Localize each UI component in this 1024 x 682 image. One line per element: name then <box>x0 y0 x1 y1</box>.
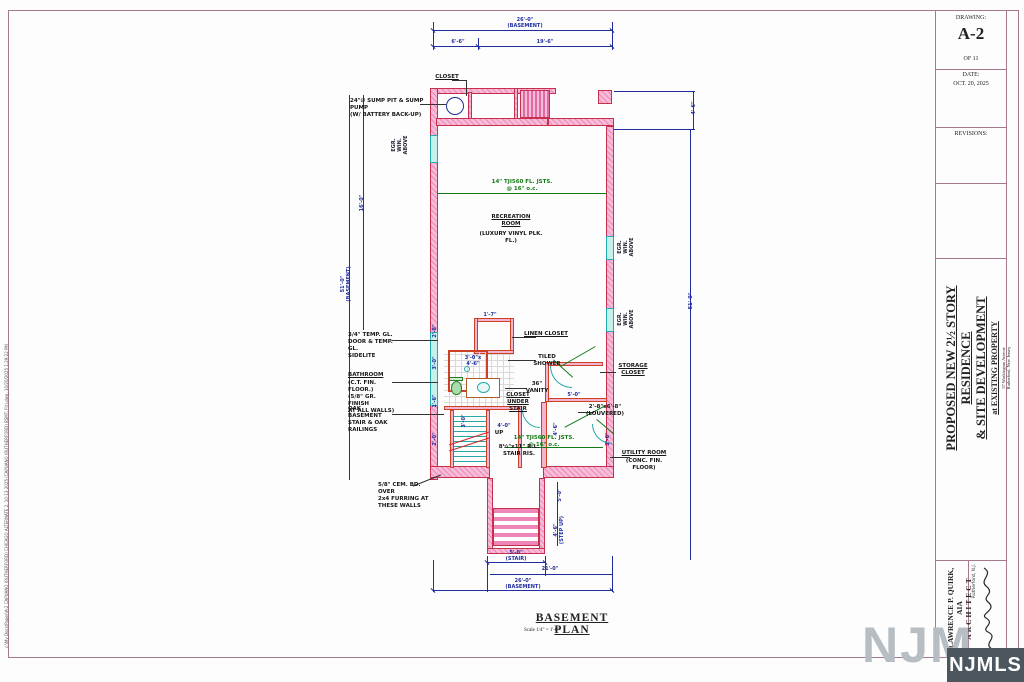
leader-line <box>392 382 438 383</box>
dim-ext <box>433 560 434 592</box>
dim-left-total: 51'-0" (BASEMENT) <box>340 260 352 308</box>
njmls-badge: NJMLS <box>947 648 1024 682</box>
wall-top-right <box>548 118 614 126</box>
label-joists-upper: 14" TJI560 FL. JSTS. @ 16" o.c. <box>490 179 554 193</box>
revisions-label: REVISIONS: <box>938 131 1004 137</box>
label-sump-pump: 24"∅ SUMP PIT & SUMP PUMP (W/ BATTERY BA… <box>350 98 424 119</box>
dim-bottom-total: 26'-0" (BASEMENT) <box>493 578 553 590</box>
exterior-steps <box>493 508 539 546</box>
dim-line <box>433 46 613 47</box>
partition <box>474 318 478 354</box>
partition <box>474 318 514 322</box>
plan-scale: Scale 1/4" = 1'-0" <box>524 628 584 633</box>
sump-pit-circle <box>446 97 464 115</box>
label-recreation-floor: (LUXURY VINYL PLK. FL.) <box>478 231 544 245</box>
label-tiled-shower: TILED SHOWER <box>532 354 562 368</box>
dim-storage: 5'-0" <box>562 392 586 398</box>
label-stair-risers: 8½"x11" R.L. STAIR RIS. <box>496 444 542 458</box>
window-right-lower <box>606 308 614 332</box>
architect-signature <box>976 564 1007 654</box>
joist-span-line <box>437 193 607 194</box>
dim-left-small: 2'-8" <box>432 320 438 342</box>
dim-right-upper: 4'-6" <box>691 96 697 120</box>
label-closet: CLOSET <box>430 74 464 81</box>
dim-top-left: 6'-6" <box>438 39 478 45</box>
drawing-label: DRAWING: <box>938 15 1004 21</box>
project-title-line3: at EXISTING PROPERTY <box>990 268 999 468</box>
stairwell-wall <box>539 478 545 550</box>
egress-window-note: EGR. WIN. ABOVE <box>617 305 635 333</box>
dim-door: 2'-6" <box>605 427 611 451</box>
label-utility-room: UTILITY ROOM <box>616 450 672 457</box>
window-right-upper <box>606 236 614 260</box>
label-utility-floor: (CONC. FIN. FLOOR) <box>616 458 672 472</box>
note-oak-stair: OAK BASEMENT STAIR & OAK RAILINGS <box>348 406 394 434</box>
signature-icon <box>976 564 1002 654</box>
project-title-line1: PROPOSED NEW 2½ STORY RESIDENCE <box>944 268 974 468</box>
drawing-sheet: c:\My Docs\Paper\A-2 CAPUANO (RUTHERFORD… <box>0 0 1024 682</box>
dim-understair: 4'-0" <box>492 423 516 429</box>
dim-line-right <box>690 130 691 560</box>
dim-bottom-inner: 21'-0" <box>520 566 580 572</box>
wall-segment <box>436 118 548 126</box>
toilet-tank <box>449 377 463 381</box>
label-bathroom: BATHROOM <box>348 372 394 379</box>
dim-ext <box>612 556 613 592</box>
dim-line <box>487 562 545 563</box>
titleblock-divider <box>935 560 1006 561</box>
plot-stamp: c:\My Docs\Paper\A-2 CAPUANO (RUTHERFORD… <box>4 328 9 648</box>
dim-bottom-stair: 5'-0" (STAIR) <box>487 550 545 562</box>
dim-stairwell-steps: 4'-6" (STEP UP) <box>553 515 565 545</box>
label-recreation-room: RECREATION ROOM <box>488 214 534 228</box>
storage-wall <box>545 398 607 402</box>
dim-left-small: 3'-0" <box>432 352 438 374</box>
note-tempered-glass: 3/4" TEMP. GL. DOOR & TEMP. GL. SIDELITE <box>348 332 394 360</box>
dim-top-total: 26'-0" (BASEMENT) <box>495 17 555 29</box>
label-storage-closet: STORAGE CLOSET <box>614 363 652 377</box>
window-left-upper <box>430 135 438 163</box>
dim-top-right: 19'-6" <box>520 39 570 45</box>
dim-line <box>614 91 695 92</box>
column <box>598 90 612 104</box>
label-louvered-door: 2'-8"x6'-8" (LOUVERED) <box>582 404 628 418</box>
dim-stairwell-depth: 5'-0" <box>557 483 563 507</box>
project-title-block: PROPOSED NEW 2½ STORY RESIDENCE & SITE D… <box>944 268 1011 468</box>
date-label: DATE: <box>938 72 1004 78</box>
titleblock-divider <box>935 69 1006 70</box>
dim-left-small: 1'-6" <box>432 390 438 412</box>
dim-left-small: 2'-0" <box>432 428 438 450</box>
toilet-fixture <box>451 381 462 395</box>
leader-line <box>392 414 444 415</box>
dim-stair-width: 3'-0" <box>461 409 467 433</box>
leader-line <box>466 80 467 96</box>
titleblock-divider <box>935 127 1006 128</box>
label-closet-under-stair: CLOSET UNDER STAIR <box>500 392 536 413</box>
dim-line <box>490 574 612 575</box>
titleblock-divider <box>935 183 1006 184</box>
project-address-line2: Rutherford, New Jersey <box>1006 268 1011 468</box>
note-cement-board: 5/8" CEM. BD. OVER 2x4 FURRING AT THESE … <box>378 482 434 510</box>
egress-window-note: EGR. WIN. ABOVE <box>617 233 635 261</box>
dim-right-total: 51'-0" <box>688 288 694 314</box>
dim-left-inner: 16'-0" <box>359 189 365 217</box>
dim-line <box>433 590 612 591</box>
titleblock-divider <box>935 258 1006 259</box>
dim-linen: 1'-7" <box>478 312 502 318</box>
egress-window-note: EGR. WIN. ABOVE <box>391 131 409 159</box>
dim-line <box>614 129 695 130</box>
project-title-line2: & SITE DEVELOPMENT <box>974 268 989 468</box>
dim-shower-size: 3'-0"x 4'-6" <box>462 355 484 367</box>
vanity-sink <box>477 382 490 393</box>
wall-bottom-right <box>543 466 614 478</box>
wall-hatch-bars <box>520 90 550 118</box>
drawing-number: A-2 <box>938 24 1004 44</box>
njmls-badge-text: NJMLS <box>949 654 1022 677</box>
partition <box>510 318 514 354</box>
date-value: OCT. 20, 2025 <box>938 81 1004 87</box>
sheet-of: OF 11 <box>938 56 1004 62</box>
label-linen-closet: LINEN CLOSET <box>524 331 568 338</box>
label-up: UP <box>492 430 506 437</box>
dim-line <box>433 30 613 31</box>
